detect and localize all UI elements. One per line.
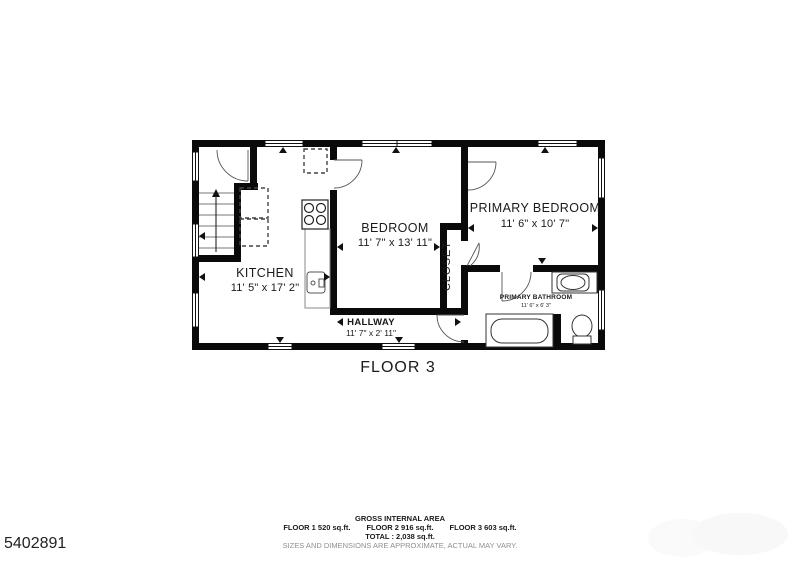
room-label-closet: CLOSET (441, 241, 453, 291)
bathtub-symbol (486, 314, 553, 347)
room-dimensions-primary-bedroom: 11' 6" x 10' 7" (501, 218, 570, 230)
stairs (199, 189, 234, 252)
floor-title: FLOOR 3 (360, 359, 435, 376)
room-dimensions-kitchen: 11' 5" x 17' 2" (231, 282, 300, 294)
disclaimer-text: SIZES AND DIMENSIONS ARE APPROXIMATE, AC… (0, 542, 800, 551)
floor-3-area: FLOOR 3 603 sq.ft. (450, 523, 517, 532)
room-dimensions-bedroom: 11' 7" x 13' 11" (358, 237, 432, 249)
area-summary: GROSS INTERNAL AREA FLOOR 1 520 sq.ft.FL… (0, 515, 800, 551)
floor-plan-graphic: KITCHEN 11' 5" x 17' 2" BEDROOM 11' 7" x… (0, 0, 800, 565)
room-dimensions-primary-bathroom: 11' 6" x 6' 3" (521, 303, 551, 309)
room-label-primary-bathroom: PRIMARY BATHROOM (500, 294, 572, 301)
kitchen-sink-symbol (307, 272, 325, 293)
room-label-kitchen: KITCHEN (236, 266, 294, 280)
kitchen-counter-symbol (305, 229, 330, 308)
floor-2-area: FLOOR 2 916 sq.ft. (366, 523, 433, 532)
total-area: TOTAL : 2,038 sq.ft. (0, 533, 800, 542)
stove-symbol (302, 200, 328, 229)
room-label-primary-bedroom: PRIMARY BEDROOM (470, 201, 601, 215)
floor-1-area: FLOOR 1 520 sq.ft. (283, 523, 350, 532)
listing-id: 5402891 (4, 535, 66, 553)
room-label-hallway: HALLWAY (347, 317, 395, 328)
vanity-sink-symbol (552, 272, 597, 293)
room-label-bedroom: BEDROOM (361, 221, 428, 235)
toilet-symbol (572, 315, 592, 344)
room-dimensions-hallway: 11' 7" x 2' 11" (346, 328, 396, 338)
floor-plan-page: KITCHEN 11' 5" x 17' 2" BEDROOM 11' 7" x… (0, 0, 800, 565)
